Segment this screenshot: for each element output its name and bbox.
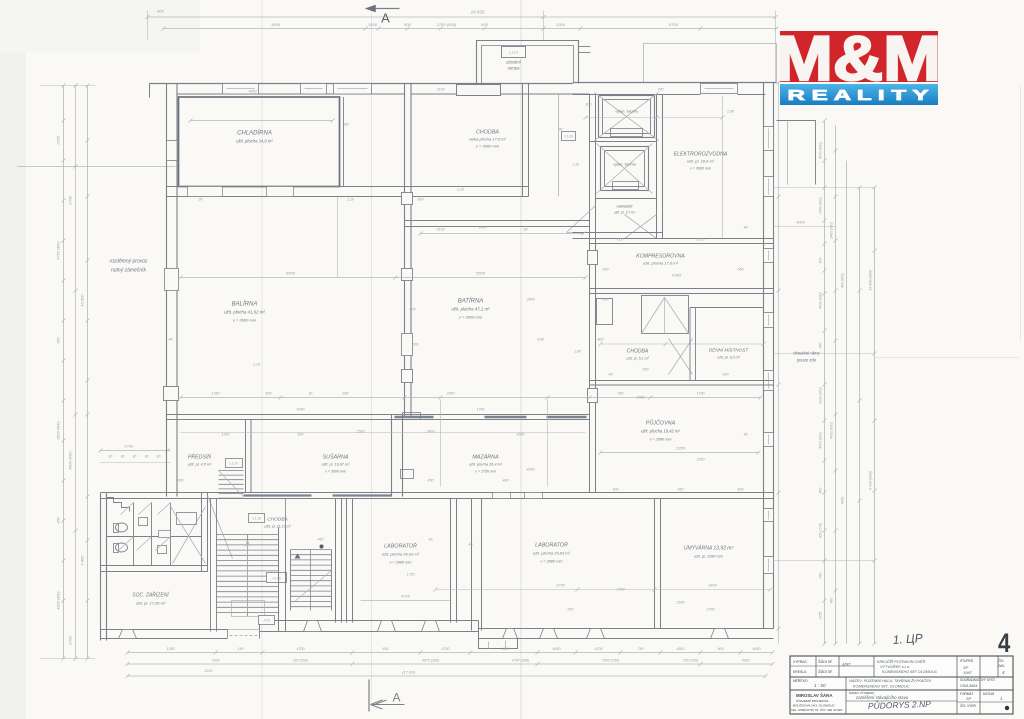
- svg-text:4700: 4700: [442, 647, 450, 651]
- svg-text:2700: 2700: [57, 135, 61, 145]
- svg-text:užit. pl. 2980 mm: užit. pl. 2980 mm: [694, 555, 723, 559]
- svg-text:rozdělený provoz: rozdělený provoz: [109, 259, 148, 265]
- svg-text:4000: 4000: [753, 647, 761, 651]
- svg-text:60: 60: [157, 455, 161, 459]
- svg-text:600: 600: [603, 268, 609, 272]
- svg-text:5600: 5600: [286, 271, 296, 276]
- svg-text:KOMENSKÉHO 587, OLOMOUC: KOMENSKÉHO 587, OLOMOUC: [853, 684, 910, 689]
- svg-text:PŘEDSÍŇ: PŘEDSÍŇ: [188, 453, 211, 461]
- svg-text:4700: 4700: [401, 594, 411, 599]
- svg-text:4,085: 4,085: [672, 274, 682, 278]
- svg-text:4700: 4700: [297, 647, 305, 651]
- svg-text:užit. plocha 19,42 m²: užit. plocha 19,42 m²: [641, 429, 680, 434]
- svg-text:užit. pl. 11,15 m²: užit. pl. 11,15 m²: [264, 525, 291, 529]
- svg-text:výtah. šachta: výtah. šachta: [613, 163, 635, 167]
- svg-text:4/97: 4/97: [842, 662, 851, 667]
- svg-text:v = 3600 mm: v = 3600 mm: [233, 318, 257, 323]
- svg-text:650: 650: [738, 268, 744, 272]
- svg-text:5400 (450): 5400 (450): [69, 451, 73, 470]
- svg-text:v = 2980 mm: v = 2980 mm: [649, 438, 671, 442]
- svg-text:600: 600: [568, 608, 574, 612]
- svg-text:NÁZEV: POZEMNÍ HALA, TAVÍRNA Ž: NÁZEV: POZEMNÍ HALA, TAVÍRNA ŽVÝKAČEK: [849, 678, 932, 683]
- svg-text:450: 450: [618, 392, 624, 396]
- svg-text:1400: 1400: [479, 226, 487, 230]
- svg-text:2795: 2795: [819, 612, 823, 621]
- svg-text:600: 600: [343, 392, 349, 396]
- svg-text:450: 450: [57, 516, 61, 523]
- svg-text:600: 600: [723, 373, 729, 377]
- svg-text:UMÝVÁRNA 13,92 m²: UMÝVÁRNA 13,92 m²: [684, 545, 734, 552]
- svg-text:ELEKTROROZVODNA: ELEKTROROZVODNA: [674, 152, 728, 158]
- svg-text:450: 450: [428, 479, 434, 483]
- svg-text:3600: 3600: [271, 22, 281, 27]
- svg-text:600: 600: [418, 198, 424, 202]
- svg-text:MĚŘÍTKO: MĚŘÍTKO: [793, 678, 808, 683]
- svg-text:užit. plocha 24,0 m²: užit. plocha 24,0 m²: [236, 139, 273, 144]
- svg-text:1750 (900): 1750 (900): [437, 22, 457, 27]
- svg-text:PŮDORYS 2.NP: PŮDORYS 2.NP: [868, 698, 932, 711]
- svg-text:CHODBA: CHODBA: [627, 349, 649, 355]
- svg-text:600: 600: [503, 647, 509, 651]
- svg-text:450: 450: [57, 336, 61, 343]
- svg-text:3400: 3400: [708, 584, 717, 588]
- svg-text:600: 600: [178, 479, 184, 483]
- svg-text:4000: 4000: [796, 221, 805, 225]
- svg-text:1500: 1500: [357, 430, 365, 434]
- svg-text:užit. plocha 26,03 m²: užit. plocha 26,03 m²: [382, 552, 420, 557]
- svg-text:užit. pl. 19,97 m²: užit. pl. 19,97 m²: [321, 463, 350, 467]
- svg-text:4000: 4000: [841, 497, 845, 505]
- svg-text:+1,40: +1,40: [272, 577, 281, 581]
- svg-text:46: 46: [429, 538, 433, 542]
- svg-text:ČÍS.: ČÍS.: [998, 658, 1004, 663]
- svg-text:2100: 2100: [436, 88, 445, 92]
- svg-text:450: 450: [830, 598, 834, 604]
- svg-text:výtah. šachta: výtah. šachta: [615, 110, 637, 114]
- svg-text:450: 450: [819, 488, 823, 494]
- svg-text:2700: 2700: [69, 195, 73, 205]
- svg-text:DATUM: DATUM: [983, 692, 994, 696]
- svg-text:užit. pl. 4,5 m²: užit. pl. 4,5 m²: [188, 463, 213, 467]
- svg-text:CHODBA: CHODBA: [476, 130, 499, 136]
- svg-text:1350: 1350: [222, 433, 230, 437]
- svg-text:1300: 1300: [556, 22, 566, 27]
- svg-text:450: 450: [318, 538, 324, 542]
- svg-text:6 800: 6 800: [80, 555, 85, 566]
- svg-text:6 420 (600): 6 420 (600): [869, 471, 873, 489]
- svg-text:BATÍRNA: BATÍRNA: [458, 298, 484, 305]
- svg-text:v = 3600 mm: v = 3600 mm: [690, 167, 711, 171]
- svg-text:7600: 7600: [742, 659, 750, 663]
- svg-text:90: 90: [145, 455, 149, 459]
- svg-text:1,10: 1,10: [457, 188, 464, 192]
- svg-text:5340: 5340: [297, 408, 305, 412]
- svg-text:2350: 2350: [696, 458, 705, 462]
- svg-text:2780: 2780: [616, 588, 625, 592]
- svg-text:užit. plocha 17,0 m²: užit. plocha 17,0 m²: [643, 261, 679, 266]
- svg-text:2780: 2780: [706, 608, 715, 612]
- svg-text:užit. plocha 26,4 m²: užit. plocha 26,4 m²: [469, 463, 503, 467]
- svg-text:4000 (600): 4000 (600): [819, 432, 823, 448]
- svg-text:užit. plocha 26,03 m²: užit. plocha 26,03 m²: [533, 551, 571, 556]
- svg-text:v = 3600 mm: v = 3600 mm: [459, 315, 483, 320]
- svg-text:užit. plocha 41,62 m²: užit. plocha 41,62 m²: [224, 310, 265, 315]
- svg-text:1,80: 1,80: [574, 350, 581, 354]
- svg-text:600: 600: [819, 258, 823, 264]
- svg-text:KOMPRESOROVNA: KOMPRESOROVNA: [636, 254, 685, 260]
- svg-text:ČÍS. VÝKR.: ČÍS. VÝKR.: [960, 703, 977, 708]
- svg-text:650: 650: [678, 488, 684, 492]
- svg-text:4000 (600): 4000 (600): [819, 292, 823, 308]
- svg-text:600: 600: [266, 392, 272, 396]
- svg-text:MIROSLAV ŠÁRA: MIROSLAV ŠÁRA: [796, 693, 833, 698]
- svg-text:650: 650: [643, 368, 649, 372]
- svg-text:46: 46: [469, 543, 473, 547]
- svg-text:velká plocha 17,0 m²: velká plocha 17,0 m²: [469, 137, 507, 142]
- svg-text:1500: 1500: [368, 22, 378, 27]
- svg-text:1.1.16: 1.1.16: [252, 517, 261, 521]
- svg-text:CHODBA: CHODBA: [267, 517, 288, 523]
- svg-text:nákladišť: nákladišť: [616, 204, 633, 209]
- svg-text:1. ЦР: 1. ЦР: [892, 631, 923, 647]
- svg-text:7200: 7200: [212, 659, 220, 663]
- svg-text:pouze zde: pouze zde: [796, 358, 817, 363]
- svg-text:60: 60: [109, 455, 113, 459]
- svg-text:650: 650: [383, 647, 389, 651]
- svg-text:1780: 1780: [697, 392, 705, 396]
- svg-text:2750: 2750: [555, 584, 565, 588]
- svg-text:460 (600): 460 (600): [841, 273, 845, 288]
- svg-text:v = 3600 mm: v = 3600 mm: [325, 470, 346, 474]
- svg-text:600: 600: [738, 488, 744, 492]
- svg-text:OSM-8864: OSM-8864: [960, 684, 977, 688]
- svg-text:KRESLIL: KRESLIL: [793, 670, 807, 674]
- svg-text:2,80: 2,80: [726, 110, 734, 114]
- svg-text:2780: 2780: [636, 396, 645, 400]
- svg-text:KOMENSKÉHO 587 OLOMOUC: KOMENSKÉHO 587 OLOMOUC: [882, 669, 938, 674]
- svg-text:2460: 2460: [426, 430, 435, 434]
- svg-text:1997: 1997: [963, 670, 973, 675]
- svg-text:14 650: 14 650: [471, 10, 485, 15]
- svg-text:užit. pl. 18,6 m²: užit. pl. 18,6 m²: [687, 159, 715, 164]
- svg-text:SUŠÁRNA: SUŠÁRNA: [322, 454, 348, 461]
- svg-text:2590: 2590: [676, 601, 685, 605]
- svg-text:Šára M.: Šára M.: [818, 659, 833, 664]
- svg-text:1760: 1760: [124, 444, 134, 449]
- svg-text:46: 46: [609, 373, 613, 377]
- svg-text:LABORATOŘ: LABORATOŘ: [535, 541, 568, 549]
- svg-text:1350: 1350: [167, 647, 175, 651]
- svg-text:užit. pl. 17,26 m²: užit. pl. 17,26 m²: [136, 601, 166, 606]
- svg-text:4797 (398): 4797 (398): [512, 659, 529, 663]
- svg-text:4600: 4600: [527, 468, 535, 472]
- svg-text:450: 450: [819, 343, 823, 349]
- svg-text:1.1.06: 1.1.06: [564, 135, 573, 139]
- svg-text:780: 780: [658, 88, 664, 92]
- svg-text:2,10: 2,10: [346, 198, 354, 202]
- svg-text:48: 48: [744, 226, 748, 230]
- svg-text:užit. plocha 47,1 m²: užit. plocha 47,1 m²: [451, 307, 490, 312]
- svg-text:90: 90: [309, 392, 313, 396]
- svg-text:v = 1750 mm: v = 1750 mm: [475, 470, 496, 474]
- svg-text:LABORATOŘ: LABORATOŘ: [384, 542, 417, 550]
- svg-text:600: 600: [586, 103, 592, 107]
- svg-text:800: 800: [598, 338, 604, 342]
- svg-text:SOC. ZAŘÍZENÍ: SOC. ZAŘÍZENÍ: [132, 591, 170, 599]
- svg-text:600: 600: [157, 9, 164, 14]
- svg-text:7500 (750): 7500 (750): [602, 659, 619, 663]
- svg-text:nutný zámečník: nutný zámečník: [111, 268, 147, 274]
- svg-text:TEL. 0684/33 55 75, IČO: 462 3: TEL. 0684/33 55 75, IČO: 462 33 987: [791, 707, 843, 712]
- svg-text:4000 (600): 4000 (600): [830, 422, 834, 438]
- svg-text:zásobní: zásobní: [505, 60, 522, 65]
- svg-text:750: 750: [638, 647, 644, 651]
- svg-text:4000: 4000: [553, 647, 561, 651]
- svg-text:+4,5: +4,5: [263, 619, 270, 623]
- svg-text:ZAK.: ZAK.: [998, 664, 1005, 668]
- svg-text:3210: 3210: [205, 669, 213, 673]
- svg-text:2350: 2350: [696, 238, 705, 242]
- svg-text:KREJČÍŘ POTRAVIN OVĚŘ: KREJČÍŘ POTRAVIN OVĚŘ: [877, 659, 926, 664]
- svg-text:90: 90: [199, 198, 203, 202]
- svg-text:650: 650: [618, 238, 624, 242]
- svg-text:1.1.10: 1.1.10: [229, 462, 238, 466]
- svg-text:VYTVOŘEK s.r.o.: VYTVOŘEK s.r.o.: [880, 664, 910, 669]
- svg-text:R E A L I T Y: R E A L I T Y: [788, 87, 929, 104]
- svg-text:v = 2980 mm: v = 2980 mm: [389, 561, 411, 565]
- svg-text:600: 600: [410, 308, 416, 312]
- svg-text:4200 (400): 4200 (400): [57, 591, 61, 610]
- svg-text:1,10: 1,10: [253, 363, 260, 367]
- svg-text:5500: 5500: [476, 271, 486, 276]
- svg-text:4750 (400): 4750 (400): [57, 241, 61, 260]
- svg-text:1750: 1750: [407, 573, 415, 577]
- svg-text:2460 (600): 2460 (600): [830, 222, 834, 239]
- svg-text:600: 600: [298, 433, 304, 437]
- svg-text:10 900 (600): 10 900 (600): [869, 270, 873, 290]
- svg-text:480: 480: [503, 479, 509, 483]
- svg-text:3600 (400): 3600 (400): [57, 421, 61, 440]
- svg-text:2700: 2700: [69, 635, 73, 645]
- svg-text:46: 46: [744, 433, 748, 437]
- svg-text:600: 600: [413, 343, 419, 347]
- svg-text:BALÍRNA: BALÍRNA: [232, 301, 258, 308]
- svg-text:Šára M.: Šára M.: [818, 669, 833, 674]
- svg-text:(17,00): (17,00): [402, 670, 415, 675]
- svg-text:90: 90: [559, 128, 563, 132]
- svg-text:4700: 4700: [595, 647, 603, 651]
- svg-text:4100: 4100: [437, 228, 445, 232]
- svg-text:800: 800: [404, 22, 411, 27]
- svg-text:1,10: 1,10: [572, 163, 579, 167]
- svg-text:CHLADÍRNA: CHLADÍRNA: [237, 130, 272, 137]
- svg-text:4950: 4950: [249, 90, 257, 94]
- svg-text:46: 46: [169, 338, 173, 342]
- svg-text:2400: 2400: [526, 298, 535, 302]
- svg-text:900: 900: [718, 647, 724, 651]
- svg-text:DENNÍ MÍSTNOST: DENNÍ MÍSTNOST: [709, 347, 749, 353]
- svg-text:1780: 1780: [477, 408, 485, 412]
- svg-text:600 (7,00): 600 (7,00): [819, 523, 823, 538]
- svg-text:150: 150: [238, 647, 244, 651]
- svg-text:2000 (600): 2000 (600): [819, 387, 823, 404]
- svg-text:600: 600: [603, 298, 609, 302]
- svg-text:VYPRAC.: VYPRAC.: [793, 660, 808, 664]
- svg-text:1.1.01: 1.1.01: [509, 51, 519, 55]
- svg-text:STAVEBNÍ PROJEKCE: STAVEBNÍ PROJEKCE: [796, 699, 828, 703]
- svg-text:450: 450: [819, 573, 823, 579]
- svg-text:380: 380: [343, 123, 349, 127]
- svg-text:dvouleté rámy: dvouleté rámy: [793, 351, 820, 356]
- svg-text:750 (150): 750 (150): [683, 659, 698, 663]
- svg-text:STUPEŇ: STUPEŇ: [960, 659, 974, 663]
- svg-text:4: 4: [998, 629, 1011, 659]
- svg-text:v = 2980 mm: v = 2980 mm: [540, 560, 562, 564]
- svg-text:MAZÁRNA: MAZÁRNA: [472, 454, 499, 461]
- svg-text:90: 90: [121, 455, 125, 459]
- svg-text:320 (350): 320 (350): [293, 659, 308, 663]
- svg-text:90: 90: [524, 228, 528, 232]
- svg-text:2350: 2350: [675, 446, 686, 451]
- svg-text:rampa: rampa: [508, 66, 521, 71]
- svg-text:A: A: [381, 11, 390, 26]
- svg-text:2460 (600): 2460 (600): [819, 197, 823, 214]
- svg-text:užit. pl. 8,0 m²: užit. pl. 8,0 m²: [717, 356, 740, 360]
- svg-text:90: 90: [133, 455, 137, 459]
- svg-text:4600: 4600: [517, 433, 525, 437]
- svg-text:600: 600: [613, 488, 619, 492]
- svg-text:5700: 5700: [669, 22, 679, 27]
- svg-text:1350: 1350: [212, 392, 220, 396]
- svg-text:SP: SP: [966, 696, 972, 701]
- svg-text:PŮJČOVNA: PŮJČOVNA: [646, 419, 676, 427]
- svg-text:4000 (600): 4000 (600): [819, 142, 823, 158]
- svg-text:10 900: 10 900: [80, 294, 85, 307]
- svg-text:1 : 50: 1 : 50: [814, 683, 826, 688]
- svg-text:užit. pl. 3,7 m²: užit. pl. 3,7 m²: [614, 211, 636, 215]
- svg-text:A: A: [392, 691, 400, 705]
- svg-text:užit. pl. 5,1 m²: užit. pl. 5,1 m²: [626, 357, 649, 361]
- svg-text:2460: 2460: [446, 392, 455, 396]
- svg-text:v = 3600 mm: v = 3600 mm: [476, 144, 500, 149]
- svg-text:4575 (390): 4575 (390): [422, 659, 439, 663]
- svg-text:BOUČKOVA 14/3, OLOMOUC: BOUČKOVA 14/3, OLOMOUC: [793, 703, 835, 708]
- svg-text:SOUŘADNICOVÝ SYST.: SOUŘADNICOVÝ SYST.: [960, 677, 996, 682]
- svg-text:600: 600: [481, 22, 488, 27]
- svg-text:4500: 4500: [677, 647, 685, 651]
- svg-text:5,00: 5,00: [537, 338, 544, 342]
